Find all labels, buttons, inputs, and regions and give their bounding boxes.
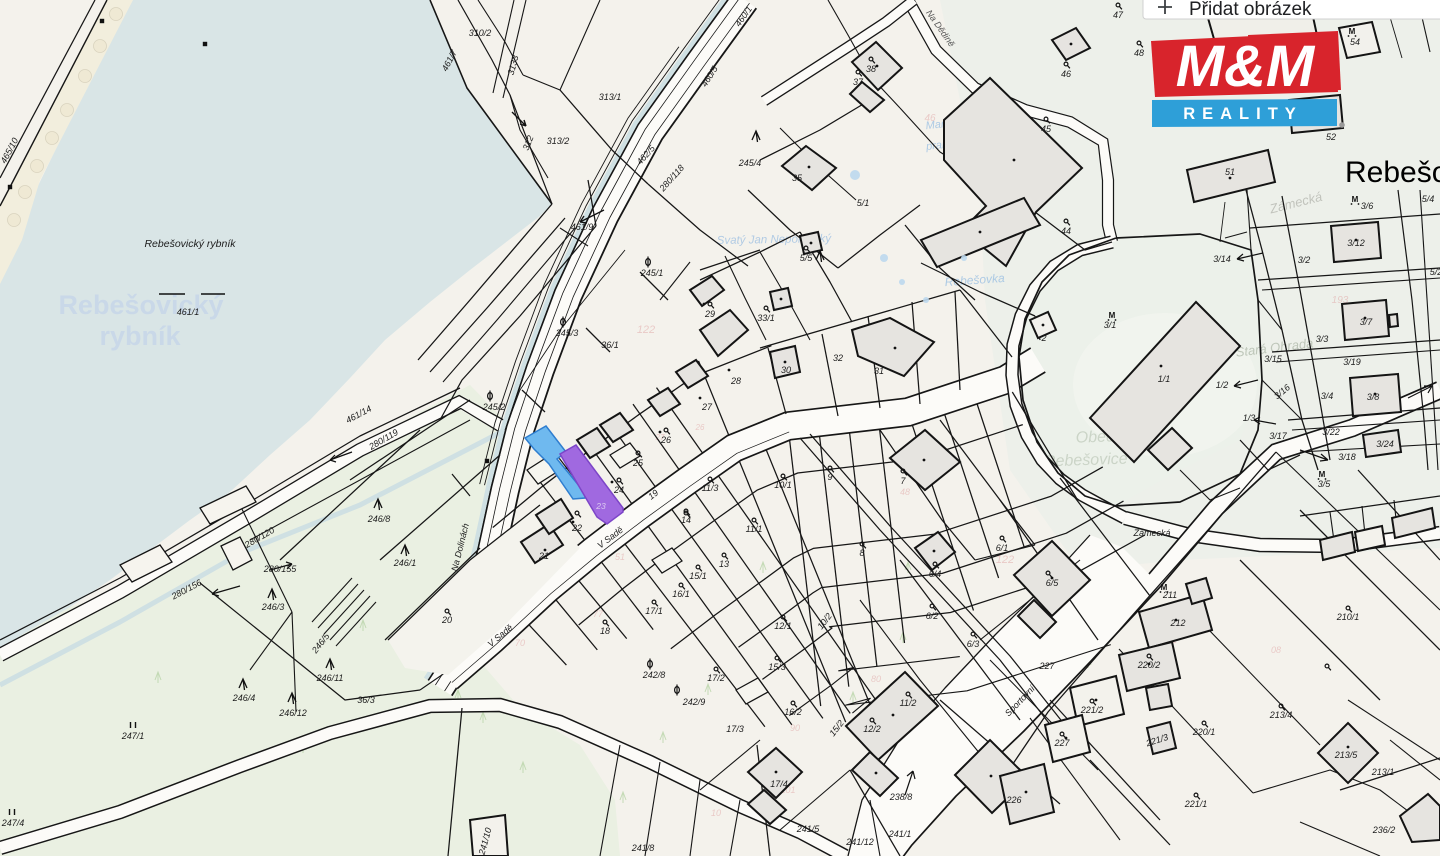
svg-text:Zámecká: Zámecká bbox=[1132, 528, 1170, 538]
svg-text:247/1: 247/1 bbox=[121, 731, 145, 741]
svg-text:3/17: 3/17 bbox=[1269, 431, 1288, 441]
svg-text:16/2: 16/2 bbox=[784, 707, 802, 717]
svg-text:11/3: 11/3 bbox=[702, 483, 719, 493]
svg-text:280/155: 280/155 bbox=[263, 564, 298, 574]
svg-text:17/4: 17/4 bbox=[770, 779, 788, 789]
svg-text:227: 227 bbox=[1053, 738, 1070, 748]
svg-text:27: 27 bbox=[701, 402, 713, 412]
svg-text:51: 51 bbox=[1225, 167, 1235, 177]
svg-text:Rebešovický rybník: Rebešovický rybník bbox=[144, 238, 236, 250]
svg-text:5/2: 5/2 bbox=[1430, 267, 1440, 277]
svg-text:M: M bbox=[1352, 195, 1359, 204]
svg-text:3/1: 3/1 bbox=[1104, 320, 1117, 330]
svg-text:6/3: 6/3 bbox=[967, 639, 980, 649]
svg-text:46: 46 bbox=[1061, 69, 1071, 79]
svg-text:32: 32 bbox=[833, 353, 843, 363]
svg-text:6/1: 6/1 bbox=[996, 543, 1009, 553]
svg-text:3/8: 3/8 bbox=[1367, 392, 1380, 402]
svg-text:25: 25 bbox=[632, 458, 644, 468]
svg-text:35: 35 bbox=[792, 173, 803, 183]
svg-text:246/8: 246/8 bbox=[367, 514, 391, 524]
svg-text:246/4: 246/4 bbox=[232, 693, 256, 703]
svg-text:17/1: 17/1 bbox=[645, 606, 663, 616]
svg-text:37: 37 bbox=[853, 77, 864, 87]
svg-text:220/2: 220/2 bbox=[1137, 660, 1161, 670]
svg-text:22: 22 bbox=[571, 523, 582, 533]
svg-text:08: 08 bbox=[1271, 645, 1281, 655]
svg-text:47: 47 bbox=[1113, 10, 1124, 20]
svg-text:122: 122 bbox=[637, 324, 655, 336]
svg-text:M&M: M&M bbox=[1176, 34, 1316, 99]
svg-text:5/1: 5/1 bbox=[857, 198, 870, 208]
svg-text:Přidat obrázek: Přidat obrázek bbox=[1189, 0, 1312, 20]
svg-text:29: 29 bbox=[704, 309, 715, 319]
svg-text:REALITY: REALITY bbox=[1183, 105, 1303, 123]
svg-text:1/1: 1/1 bbox=[1158, 374, 1171, 384]
svg-text:23: 23 bbox=[595, 501, 606, 511]
svg-text:238/8: 238/8 bbox=[889, 792, 913, 802]
svg-text:3/24: 3/24 bbox=[1376, 439, 1394, 449]
svg-text:M: M bbox=[1319, 470, 1326, 479]
svg-text:15/1: 15/1 bbox=[689, 571, 707, 581]
svg-text:3/15: 3/15 bbox=[1264, 354, 1283, 364]
svg-text:241/8: 241/8 bbox=[631, 843, 655, 853]
svg-text:36/3: 36/3 bbox=[357, 695, 375, 705]
svg-text:241/12: 241/12 bbox=[845, 837, 874, 847]
svg-text:6/4: 6/4 bbox=[929, 569, 942, 579]
svg-text:33/1: 33/1 bbox=[757, 313, 775, 323]
svg-text:6/2: 6/2 bbox=[926, 611, 939, 621]
svg-text:13: 13 bbox=[719, 559, 729, 569]
svg-text:226: 226 bbox=[1005, 795, 1021, 805]
svg-text:17/2: 17/2 bbox=[707, 673, 725, 683]
svg-text:18: 18 bbox=[600, 626, 610, 636]
svg-text:77: 77 bbox=[593, 609, 604, 619]
svg-text:241/5: 241/5 bbox=[796, 824, 821, 834]
svg-text:3/22: 3/22 bbox=[1322, 427, 1340, 437]
svg-text:3/4: 3/4 bbox=[1321, 391, 1334, 401]
svg-text:241/1: 241/1 bbox=[888, 829, 912, 839]
svg-text:45: 45 bbox=[1041, 124, 1052, 134]
svg-text:211: 211 bbox=[1162, 590, 1177, 600]
svg-text:313/1: 313/1 bbox=[599, 92, 622, 102]
svg-text:220/1: 220/1 bbox=[1192, 727, 1216, 737]
svg-text:48: 48 bbox=[900, 487, 910, 497]
svg-text:11/1: 11/1 bbox=[746, 524, 763, 534]
svg-text:245/1: 245/1 bbox=[640, 268, 664, 278]
svg-text:48: 48 bbox=[1134, 48, 1144, 58]
svg-text:1/3: 1/3 bbox=[1243, 413, 1256, 423]
svg-text:24: 24 bbox=[613, 485, 624, 495]
svg-text:46: 46 bbox=[924, 113, 936, 124]
svg-text:52: 52 bbox=[1326, 132, 1336, 142]
svg-text:8: 8 bbox=[859, 548, 864, 558]
svg-text:242/8: 242/8 bbox=[642, 670, 666, 680]
svg-text:31: 31 bbox=[874, 366, 884, 376]
svg-text:26: 26 bbox=[695, 423, 705, 432]
svg-text:2: 2 bbox=[1040, 333, 1046, 343]
svg-text:461/1: 461/1 bbox=[177, 307, 200, 317]
svg-text:210/1: 210/1 bbox=[1336, 612, 1360, 622]
svg-text:38: 38 bbox=[866, 64, 876, 74]
svg-text:3/14: 3/14 bbox=[1213, 254, 1231, 264]
svg-text:rybník: rybník bbox=[99, 321, 181, 351]
svg-text:3/19: 3/19 bbox=[1343, 357, 1361, 367]
svg-text:70: 70 bbox=[515, 638, 525, 648]
svg-text:30: 30 bbox=[781, 365, 791, 375]
svg-text:213/5: 213/5 bbox=[1334, 750, 1359, 760]
svg-text:3/6: 3/6 bbox=[1361, 201, 1374, 211]
svg-text:461/9: 461/9 bbox=[571, 222, 594, 232]
svg-text:26: 26 bbox=[660, 435, 671, 445]
svg-text:44: 44 bbox=[1061, 226, 1071, 236]
svg-text:5/4: 5/4 bbox=[1422, 194, 1435, 204]
svg-text:3/7: 3/7 bbox=[1360, 317, 1374, 327]
svg-text:213/4: 213/4 bbox=[1269, 710, 1293, 720]
svg-text:M: M bbox=[1349, 27, 1356, 36]
svg-text:14: 14 bbox=[681, 515, 691, 525]
svg-text:10: 10 bbox=[711, 808, 721, 818]
svg-text:15/3: 15/3 bbox=[768, 662, 786, 672]
svg-text:245/4: 245/4 bbox=[738, 158, 762, 168]
svg-text:221/2: 221/2 bbox=[1080, 705, 1104, 715]
svg-text:313/2: 313/2 bbox=[547, 136, 570, 146]
svg-text:10/1: 10/1 bbox=[774, 480, 792, 490]
svg-text:M: M bbox=[1109, 311, 1116, 320]
svg-text:36/1: 36/1 bbox=[601, 340, 619, 350]
svg-text:6/5: 6/5 bbox=[1046, 578, 1060, 588]
svg-text:Rebešov: Rebešov bbox=[1345, 156, 1440, 189]
svg-text:236/2: 236/2 bbox=[1372, 825, 1396, 835]
svg-text:221/1: 221/1 bbox=[1184, 799, 1208, 809]
svg-text:11/2: 11/2 bbox=[900, 698, 917, 708]
svg-text:1/2: 1/2 bbox=[1216, 380, 1229, 390]
svg-text:245/3: 245/3 bbox=[555, 328, 579, 338]
svg-text:16/1: 16/1 bbox=[672, 589, 690, 599]
svg-text:246/11: 246/11 bbox=[316, 673, 344, 683]
svg-text:80: 80 bbox=[871, 674, 881, 684]
svg-text:3/3: 3/3 bbox=[1316, 334, 1329, 344]
svg-text:246/3: 246/3 bbox=[261, 602, 285, 612]
svg-text:213/1: 213/1 bbox=[1371, 767, 1395, 777]
svg-text:242/9: 242/9 bbox=[682, 697, 706, 707]
svg-text:3/12: 3/12 bbox=[1347, 238, 1365, 248]
svg-text:12/1: 12/1 bbox=[774, 621, 792, 631]
svg-text:9: 9 bbox=[827, 472, 832, 482]
svg-text:247/4: 247/4 bbox=[1, 818, 25, 828]
svg-text:54: 54 bbox=[1350, 37, 1360, 47]
svg-text:5/5: 5/5 bbox=[800, 253, 814, 263]
svg-text:212: 212 bbox=[1169, 618, 1185, 628]
svg-text:3/5: 3/5 bbox=[1318, 479, 1332, 489]
svg-text:227: 227 bbox=[1038, 661, 1055, 671]
svg-text:3/18: 3/18 bbox=[1338, 452, 1356, 462]
svg-text:246/1: 246/1 bbox=[393, 558, 417, 568]
svg-text:122: 122 bbox=[996, 554, 1014, 566]
svg-text:12/2: 12/2 bbox=[863, 724, 881, 734]
svg-text:3/2: 3/2 bbox=[1298, 255, 1311, 265]
svg-text:28: 28 bbox=[730, 376, 741, 386]
svg-text:310/2: 310/2 bbox=[469, 28, 492, 38]
svg-text:17/3: 17/3 bbox=[726, 724, 744, 734]
svg-text:245/2: 245/2 bbox=[482, 402, 506, 412]
svg-text:20: 20 bbox=[441, 615, 452, 625]
svg-text:51: 51 bbox=[615, 552, 625, 562]
svg-text:246/12: 246/12 bbox=[278, 708, 307, 718]
svg-text:21: 21 bbox=[538, 551, 549, 561]
